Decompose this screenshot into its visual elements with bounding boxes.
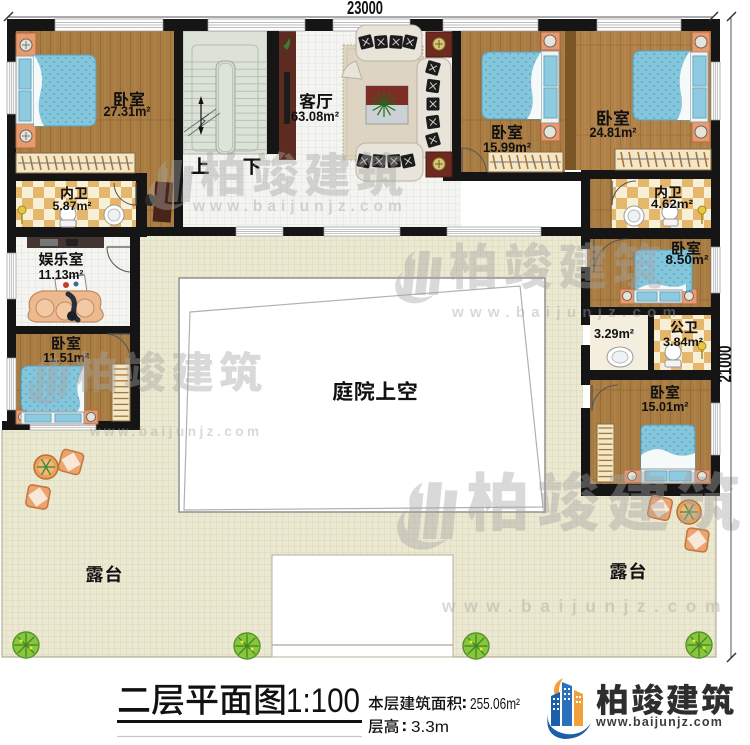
svg-text:27.31m²: 27.31m²: [104, 104, 151, 119]
svg-text:255.06m²: 255.06m²: [470, 696, 520, 713]
svg-text:www.baijunjz.com: www.baijunjz.com: [89, 424, 263, 439]
svg-text:5.87m²: 5.87m²: [53, 199, 92, 213]
svg-text:4.62m²: 4.62m²: [651, 197, 693, 211]
svg-text:21000: 21000: [715, 346, 735, 383]
svg-text:3.84m²: 3.84m²: [663, 335, 703, 349]
svg-text:3.3m: 3.3m: [411, 719, 449, 736]
svg-text:www.baijunjz.com: www.baijunjz.com: [441, 596, 729, 616]
svg-text:23000: 23000: [347, 0, 383, 18]
svg-text:8.50m²: 8.50m²: [666, 253, 709, 267]
svg-text:www.baijunjz.com: www.baijunjz.com: [595, 715, 723, 729]
svg-text:www.baijunjz.com: www.baijunjz.com: [192, 198, 407, 215]
svg-text:11.13m²: 11.13m²: [39, 268, 84, 282]
svg-text:3.29m²: 3.29m²: [594, 327, 634, 341]
svg-text:1:100: 1:100: [286, 682, 360, 720]
svg-text:24.81m²: 24.81m²: [590, 124, 637, 140]
svg-text:63.08m²: 63.08m²: [291, 108, 339, 124]
svg-text:15.01m²: 15.01m²: [642, 399, 690, 414]
svg-text:www.baijunjz.com: www.baijunjz.com: [451, 304, 682, 321]
svg-text:15.99m²: 15.99m²: [483, 140, 531, 155]
